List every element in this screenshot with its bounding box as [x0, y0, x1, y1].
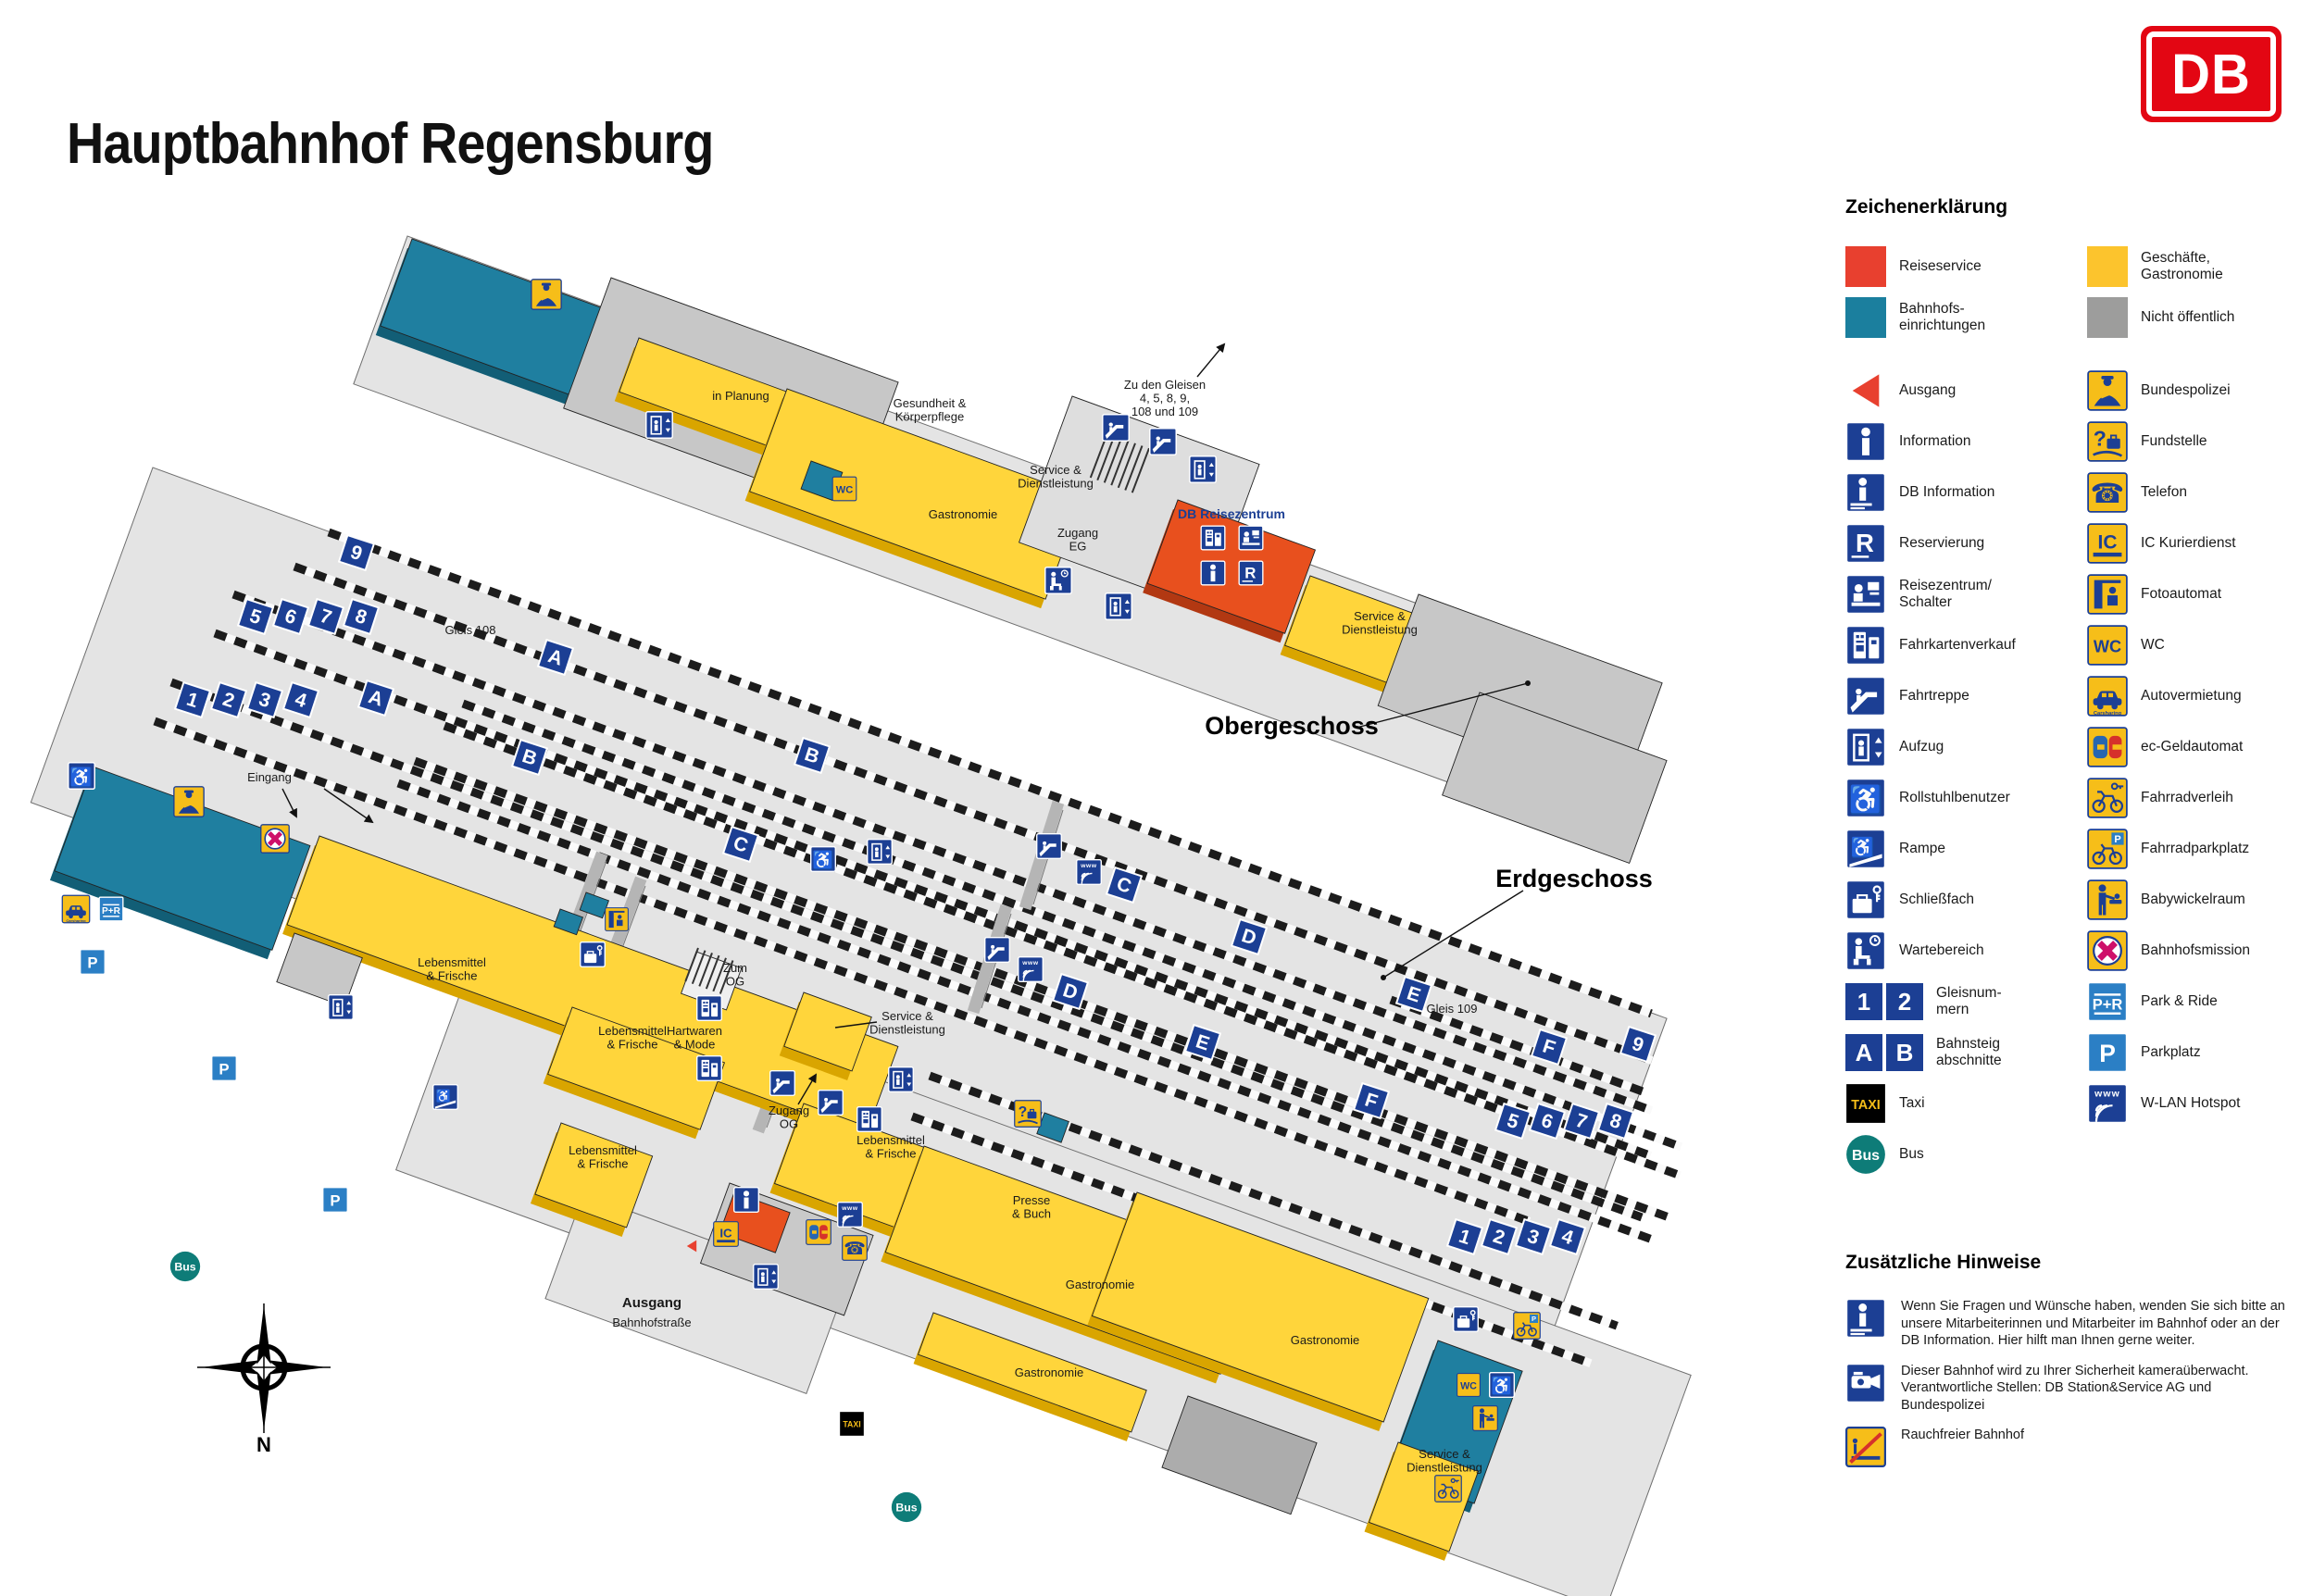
svg-text:Carsharing: Carsharing — [66, 918, 86, 923]
legend-item-fahrkartenverkauf: Fahrkartenverkauf — [1845, 625, 2067, 666]
parkplatz-icon: P — [212, 1056, 237, 1081]
svg-text:☎: ☎ — [844, 1240, 866, 1259]
fahrradverleih-icon — [2087, 778, 2128, 818]
rollstuhlbenutzer-icon: ♿ — [811, 847, 836, 872]
area-label: Lebensmittel& Frische — [569, 1143, 637, 1171]
svg-text:TAXI: TAXI — [1851, 1098, 1881, 1113]
svg-text:♿: ♿ — [1491, 1376, 1513, 1397]
legend-item-ec-geldautomat: ec-Geldautomat — [2087, 727, 2308, 767]
legend-item-wlan: wwwW-LAN Hotspot — [2087, 1083, 2308, 1124]
legend-item-badge-pair: ABBahnsteig abschnitte — [1845, 1032, 2067, 1073]
area-label: Zu den Gleisen4, 5, 8, 9,108 und 109 — [1124, 378, 1206, 418]
svg-text:WC: WC — [1460, 1381, 1477, 1392]
schliessfach-icon — [581, 942, 606, 967]
legend-label: Ausgang — [1899, 382, 1956, 399]
area-label: ZumOG — [723, 961, 747, 989]
legend-item-swatch: Bahnhofs- einrichtungen — [1845, 297, 2067, 338]
legend-label: Reservierung — [1899, 535, 1984, 552]
area-label: Gleis 108 — [445, 623, 496, 637]
babywickelraum-icon — [1473, 1406, 1498, 1431]
svg-text:P+R: P+R — [2093, 996, 2123, 1013]
legend-item-swatch: Nicht öffentlich — [2087, 297, 2308, 338]
area-label: Gesundheit &Körperpflege — [894, 396, 967, 424]
legend-item-parkplatz: PParkplatz — [2087, 1032, 2308, 1073]
svg-text:Bus: Bus — [1852, 1148, 1880, 1164]
aufzug-icon — [754, 1265, 779, 1290]
area-label: DB Reisezentrum — [1178, 506, 1285, 521]
svg-text:P: P — [1532, 1315, 1536, 1323]
station-map-page: { "title":{"prefix":"Hauptbahnhof ","sta… — [0, 0, 2313, 1596]
wc-icon: WC — [832, 477, 856, 501]
badge-2: 2 — [1886, 983, 1923, 1020]
floor-label: Obergeschoss — [1205, 712, 1379, 740]
legend-label: Gleisnum- mern — [1936, 985, 2002, 1018]
legend-panel: Zeichenerklärung ReiseserviceBahnhofs- e… — [1845, 196, 2308, 1185]
svg-text:www: www — [1021, 960, 1039, 966]
legend-label: Fahrradparkplatz — [2141, 841, 2249, 857]
legend-label: Rollstuhlbenutzer — [1899, 790, 2010, 806]
legend-item-bahnhofsmission: Bahnhofsmission — [2087, 930, 2308, 971]
schliessfach-icon — [1845, 879, 1886, 920]
fundstelle-icon: ? — [2087, 421, 2128, 462]
telefon-icon: ☎ — [843, 1236, 868, 1261]
svg-text:WC: WC — [836, 485, 854, 496]
legend-item-fundstelle: ?Fundstelle — [2087, 421, 2308, 462]
svg-text:www: www — [2094, 1089, 2120, 1099]
fahrkartenverkauf-icon — [697, 1056, 722, 1081]
fahrtreppe-icon — [770, 1071, 795, 1096]
note-text: Dieser Bahnhof wird zu Ihrer Sicherheit … — [1901, 1363, 2290, 1415]
notes-panel: Zusätzliche Hinweise Wenn Sie Fragen und… — [1845, 1252, 2308, 1485]
note-item-rauchfrei: Rauchfreier Bahnhof — [1845, 1427, 2308, 1472]
fahrkartenverkauf-icon — [697, 996, 722, 1021]
legend-label: Schließfach — [1899, 892, 1974, 908]
bahnhofsmission-icon — [2087, 930, 2128, 971]
svg-text:Carsharing: Carsharing — [2094, 711, 2122, 717]
legend-label: Bahnhofs- einrichtungen — [1899, 301, 1985, 334]
note-text: Rauchfreier Bahnhof — [1901, 1427, 2290, 1444]
legend-item-autovermietung: CarsharingAutovermietung — [2087, 676, 2308, 717]
fahrradparkplatz-icon: P — [2087, 829, 2128, 869]
legend-label: IC Kurierdienst — [2141, 535, 2236, 552]
legend-column-left: ReiseserviceBahnhofs- einrichtungenAusga… — [1845, 246, 2067, 1185]
legend-item-db-information: DB Information — [1845, 472, 2067, 513]
legend-item-bus: BusBus — [1845, 1134, 2067, 1175]
rauchfrei-icon — [1845, 1427, 1886, 1467]
legend-item-swatch: Reiseservice — [1845, 246, 2067, 287]
legend-item-reisezentrum: Reisezentrum/ Schalter — [1845, 574, 2067, 615]
legend-label: WC — [2141, 637, 2165, 654]
legend-label: Geschäfte, Gastronomie — [2141, 250, 2223, 283]
svg-text:P+R: P+R — [102, 906, 121, 916]
legend-item-ic-kurierdienst: ICIC Kurierdienst — [2087, 523, 2308, 564]
svg-text:TAXI: TAXI — [843, 1420, 860, 1429]
svg-text:IC: IC — [719, 1227, 732, 1241]
area-label: in Planung — [712, 389, 769, 403]
svg-text:P: P — [219, 1060, 229, 1078]
park-ride-icon: P+R — [99, 897, 123, 921]
compass-rose: N — [197, 1303, 331, 1456]
legend-item-telefon: ☎Telefon — [2087, 472, 2308, 513]
bus-icon: Bus — [170, 1252, 200, 1281]
fahrtreppe-icon — [1103, 415, 1130, 442]
fahrtreppe-icon — [819, 1091, 844, 1116]
legend-label: Fundstelle — [2141, 433, 2207, 450]
note-text: Wenn Sie Fragen und Wünsche haben, wende… — [1901, 1298, 2290, 1350]
legend-label: Rampe — [1899, 841, 1945, 857]
aufzug-icon — [329, 995, 354, 1020]
notes-heading: Zusätzliche Hinweise — [1845, 1252, 2308, 1274]
fahrtreppe-icon — [1037, 834, 1062, 859]
svg-text:♿: ♿ — [69, 766, 93, 788]
floor-label: Erdgeschoss — [1495, 865, 1653, 892]
legend-item-fahrradverleih: Fahrradverleih — [2087, 778, 2308, 818]
rampe-icon: ♿ — [1845, 829, 1886, 869]
legend-item-swatch: Geschäfte, Gastronomie — [2087, 246, 2308, 287]
badge-B: B — [1886, 1034, 1923, 1071]
svg-text:IC: IC — [2098, 532, 2118, 554]
area-label: Presse& Buch — [1012, 1193, 1051, 1221]
legend-label: Fotoautomat — [2141, 586, 2221, 603]
fahrtreppe-icon — [1150, 429, 1177, 455]
ec-geldautomat-icon — [2087, 727, 2128, 767]
autovermietung-icon: Carsharing — [2087, 676, 2128, 717]
legend-label: Information — [1899, 433, 1971, 450]
badge-1: 1 — [1845, 983, 1882, 1020]
bus-icon: Bus — [1845, 1134, 1886, 1175]
aufzug-icon — [868, 840, 893, 865]
fahrkartenverkauf-icon — [857, 1107, 882, 1132]
legend-label: Fahrtreppe — [1899, 688, 1969, 704]
reisezentrum-icon — [1239, 526, 1263, 550]
legend-item-schliessfach: Schließfach — [1845, 879, 2067, 920]
legend-label: Nicht öffentlich — [2141, 309, 2234, 326]
legend-label: Wartebereich — [1899, 942, 1984, 959]
legend-item-fahrradparkplatz: PFahrradparkplatz — [2087, 829, 2308, 869]
svg-text:www: www — [841, 1205, 858, 1212]
parkplatz-icon: P — [2087, 1032, 2128, 1073]
svg-text:R: R — [1856, 529, 1874, 557]
db-logo-frame: DB — [2146, 31, 2276, 117]
fahrtreppe-icon — [1845, 676, 1886, 717]
bundespolizei-icon — [2087, 370, 2128, 411]
legend-label: W-LAN Hotspot — [2141, 1095, 2240, 1112]
rampe-icon: ♿ — [433, 1085, 458, 1110]
legend-item-aufzug: Aufzug — [1845, 727, 2067, 767]
wlan-icon: www — [1077, 860, 1102, 885]
legend-item-badge-pair: 12Gleisnum- mern — [1845, 981, 2067, 1022]
wlan-icon: www — [838, 1203, 863, 1228]
area-label: Lebensmittel& Frische — [418, 955, 486, 983]
legend-color-swatch — [2087, 246, 2128, 287]
legend-label: DB Information — [1899, 484, 1994, 501]
legend-label: Autovermietung — [2141, 688, 2242, 704]
autovermietung-icon: Carsharing — [62, 895, 89, 923]
legend-label: Bahnhofsmission — [2141, 942, 2250, 959]
rollstuhlbenutzer-icon: ♿ — [69, 763, 95, 790]
svg-text:WC: WC — [2094, 638, 2121, 656]
ic-kurierdienst-icon: IC — [714, 1222, 739, 1247]
legend-label: Parkplatz — [2141, 1044, 2201, 1061]
compass-north-label: N — [256, 1433, 271, 1456]
rollstuhlbenutzer-icon: ♿ — [1490, 1373, 1515, 1398]
wlan-icon: www — [1019, 957, 1044, 982]
aufzug-icon — [1845, 727, 1886, 767]
legend-label: Fahrradverleih — [2141, 790, 2233, 806]
park-ride-icon: P+R — [2087, 981, 2128, 1022]
area-label: Gastronomie — [1066, 1278, 1134, 1291]
area-label: Gastronomie — [1291, 1333, 1359, 1347]
legend-label: Bahnsteig abschnitte — [1936, 1036, 2002, 1069]
legend-item-fahrtreppe: Fahrtreppe — [1845, 676, 2067, 717]
bus-icon: Bus — [892, 1492, 921, 1522]
legend-item-wc: WCWC — [2087, 625, 2308, 666]
legend-label: Babywickelraum — [2141, 892, 2245, 908]
parkplatz-icon: P — [323, 1188, 348, 1213]
legend-color-swatch — [1845, 297, 1886, 338]
wc-icon: WC — [1457, 1374, 1481, 1397]
information-icon — [1201, 561, 1225, 585]
legend-label: Bus — [1899, 1146, 1924, 1163]
area-label: Gleis 109 — [1427, 1002, 1478, 1016]
aufzug-icon — [646, 412, 673, 439]
wartebereich-icon — [1045, 567, 1072, 594]
svg-text:P: P — [2099, 1040, 2116, 1067]
title-station: Regensburg — [420, 112, 714, 176]
fahrkartenverkauf-icon — [1201, 526, 1225, 550]
svg-text:?: ? — [2094, 426, 2107, 450]
fundstelle-icon: ? — [1015, 1101, 1042, 1128]
db-information-icon — [1845, 1298, 1886, 1339]
fahrradverleih-icon — [1435, 1476, 1462, 1502]
legend-label: Reisezentrum/ Schalter — [1899, 578, 1992, 611]
svg-text:P: P — [87, 954, 97, 971]
area-label: Bahnhofstraße — [612, 1315, 691, 1329]
svg-text:R: R — [1244, 564, 1256, 581]
svg-text:♿: ♿ — [1849, 784, 1883, 816]
legend-label: Reiseservice — [1899, 258, 1982, 275]
legend-label: Park & Ride — [2141, 993, 2218, 1010]
legend-label: Fahrkartenverkauf — [1899, 637, 2016, 654]
title-prefix: Hauptbahnhof — [67, 112, 420, 176]
svg-text:?: ? — [1019, 1104, 1028, 1120]
taxi-icon: TAXI — [840, 1412, 864, 1436]
legend-item-rollstuhlbenutzer: ♿Rollstuhlbenutzer — [1845, 778, 2067, 818]
legend-item-ausgang: Ausgang — [1845, 370, 2067, 411]
legend-item-bundespolizei: Bundespolizei — [2087, 370, 2308, 411]
wlan-icon: www — [2087, 1083, 2128, 1124]
db-information-icon — [1845, 472, 1886, 513]
legend-label: Bundespolizei — [2141, 382, 2231, 399]
legend-item-rampe: ♿Rampe — [1845, 829, 2067, 869]
note-item-kamera: Dieser Bahnhof wird zu Ihrer Sicherheit … — [1845, 1363, 2308, 1415]
svg-text:♿: ♿ — [1851, 837, 1875, 859]
svg-text:P: P — [330, 1191, 340, 1209]
legend-item-park-ride: P+RPark & Ride — [2087, 981, 2308, 1022]
db-logo: DB — [2141, 26, 2282, 122]
fahrkartenverkauf-icon — [1845, 625, 1886, 666]
db-logo-text: DB — [2171, 42, 2251, 106]
schliessfach-icon — [1454, 1307, 1479, 1332]
svg-text:♿: ♿ — [436, 1089, 452, 1103]
legend-column-right: Geschäfte, GastronomieNicht öffentlichBu… — [2087, 246, 2308, 1185]
note-item-db-information: Wenn Sie Fragen und Wünsche haben, wende… — [1845, 1298, 2308, 1350]
badge-A: A — [1845, 1034, 1882, 1071]
fahrradparkplatz-icon: P — [1514, 1313, 1541, 1340]
legend-heading: Zeichenerklärung — [1845, 196, 2308, 218]
aufzug-icon — [889, 1067, 914, 1092]
taxi-icon: TAXI — [1845, 1083, 1886, 1124]
area-label: Gastronomie — [929, 507, 997, 521]
area-label: Gastronomie — [1015, 1365, 1083, 1379]
legend-label: Taxi — [1899, 1095, 1925, 1112]
wc-icon: WC — [2087, 625, 2128, 666]
babywickelraum-icon — [2087, 879, 2128, 920]
fahrtreppe-icon — [985, 938, 1010, 963]
ausgang-icon — [1845, 370, 1886, 411]
bundespolizei-icon — [531, 280, 561, 309]
reservierung-icon: R — [1845, 523, 1886, 564]
legend-item-fotoautomat: Fotoautomat — [2087, 574, 2308, 615]
kamera-icon — [1845, 1363, 1886, 1403]
svg-text:☎: ☎ — [2091, 479, 2125, 509]
svg-text:www: www — [1080, 863, 1097, 869]
area-label: Lebensmittel& Frische — [598, 1024, 667, 1052]
legend-label: ec-Geldautomat — [2141, 739, 2243, 755]
svg-text:P: P — [2114, 834, 2120, 845]
fotoautomat-icon — [606, 908, 629, 931]
legend-color-swatch — [2087, 297, 2128, 338]
information-icon — [1845, 421, 1886, 462]
aufzug-icon — [1190, 456, 1217, 483]
svg-text:Bus: Bus — [895, 1502, 917, 1515]
legend-label: Aufzug — [1899, 739, 1944, 755]
rollstuhlbenutzer-icon: ♿ — [1845, 778, 1886, 818]
bahnhofsmission-icon — [261, 825, 289, 853]
area-label: Eingang — [247, 770, 292, 784]
area-label: Ausgang — [622, 1295, 681, 1311]
information-icon — [734, 1188, 759, 1213]
legend-item-wartebereich: Wartebereich — [1845, 930, 2067, 971]
reisezentrum-icon — [1845, 574, 1886, 615]
telefon-icon: ☎ — [2087, 472, 2128, 513]
svg-text:Bus: Bus — [174, 1261, 195, 1274]
svg-text:♿: ♿ — [812, 850, 834, 871]
fotoautomat-icon — [2087, 574, 2128, 615]
legend-item-reservierung: RReservierung — [1845, 523, 2067, 564]
legend-color-swatch — [1845, 246, 1886, 287]
wartebereich-icon — [1845, 930, 1886, 971]
legend-label: Telefon — [2141, 484, 2187, 501]
legend-item-babywickelraum: Babywickelraum — [2087, 879, 2308, 920]
page-title: Hauptbahnhof Regensburg — [67, 111, 713, 177]
reservierung-icon: R — [1239, 561, 1263, 585]
area-label: Lebensmittel& Frische — [856, 1133, 925, 1161]
legend-item-taxi: TAXITaxi — [1845, 1083, 2067, 1124]
bundespolizei-icon — [174, 787, 204, 817]
parkplatz-icon: P — [81, 950, 106, 975]
area-label: Hartwaren& Mode — [667, 1024, 722, 1052]
ec-geldautomat-icon — [806, 1220, 831, 1245]
ic-kurierdienst-icon: IC — [2087, 523, 2128, 564]
aufzug-icon — [1106, 593, 1132, 620]
legend-item-information: Information — [1845, 421, 2067, 462]
